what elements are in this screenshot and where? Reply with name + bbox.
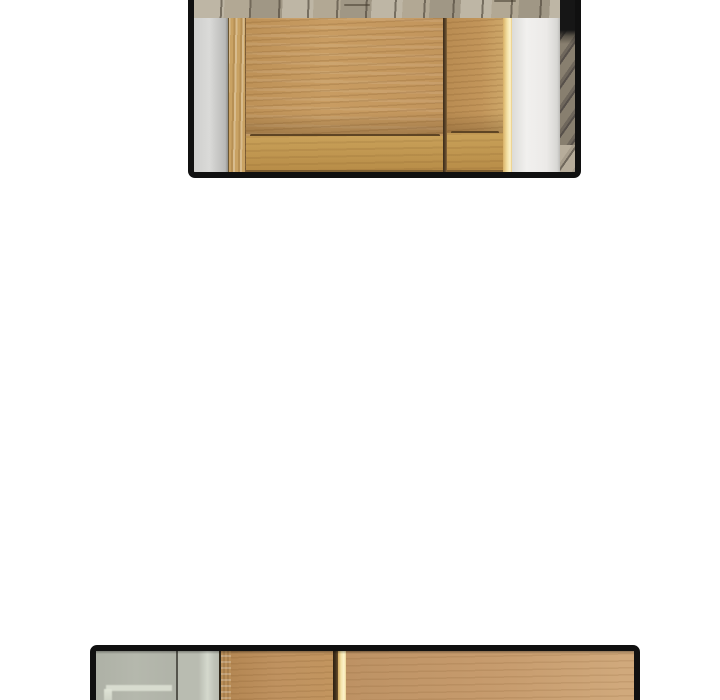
- plank-joint-mark: [494, 0, 516, 2]
- plank-joint-mark: [344, 4, 370, 6]
- panel-bottom-cabinet-scene: [90, 645, 640, 700]
- cabinet-door-left: [231, 651, 333, 700]
- glass-frame-highlight-vertical: [104, 689, 112, 700]
- panel-top-door-scene: [188, 0, 581, 178]
- door-main-panel: [245, 0, 444, 172]
- comic-page: [0, 0, 720, 700]
- hallway-floor: [560, 145, 575, 172]
- dark-hallway: [560, 0, 575, 172]
- door-edge-light: [503, 0, 512, 172]
- panel-top-shadow: [96, 651, 634, 654]
- frosted-glass-right: [178, 651, 219, 700]
- door-bottom-rail: [246, 136, 444, 172]
- door-panel-shadow: [246, 112, 444, 134]
- left-grey-wall: [194, 0, 228, 172]
- door-right-stile: [447, 0, 503, 172]
- wood-plank-floor: [194, 0, 560, 18]
- glass-frame-highlight-horizontal: [106, 685, 172, 691]
- stile-bottom-rail: [447, 133, 503, 172]
- frosted-glass-left: [96, 651, 176, 700]
- cabinet-door-right: [346, 651, 634, 700]
- cabinet-gap-light: [338, 651, 346, 700]
- right-white-wall: [512, 0, 560, 172]
